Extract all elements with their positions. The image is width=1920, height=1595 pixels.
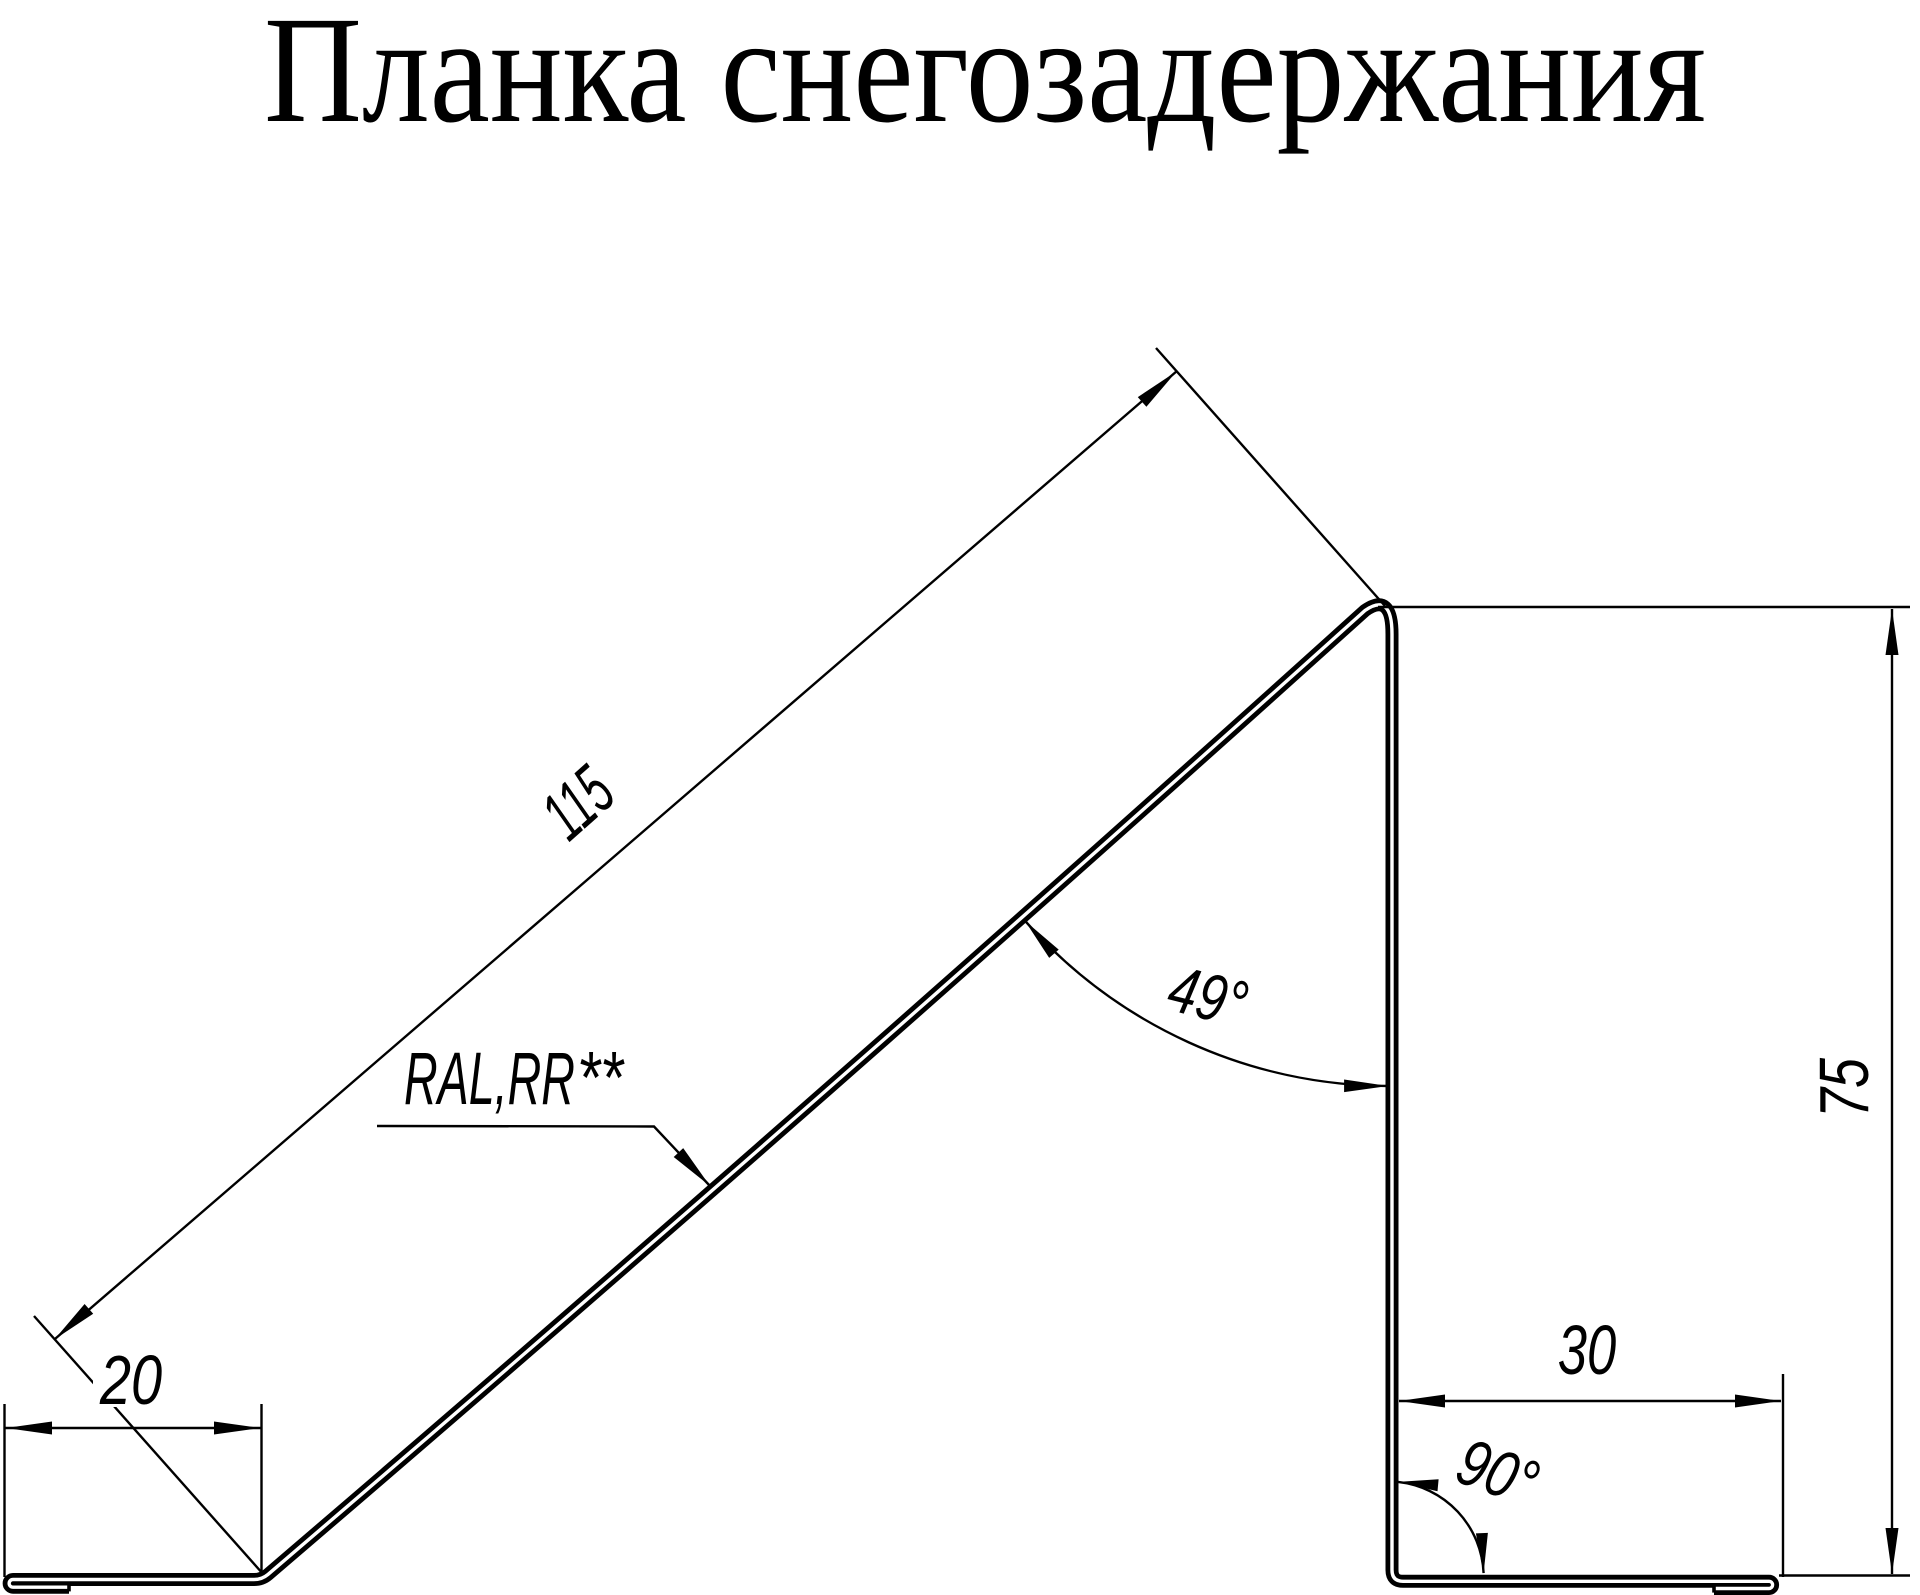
svg-text:Планка снегозадержания: Планка снегозадержания xyxy=(264,0,1706,155)
svg-text:**: ** xyxy=(577,1037,625,1120)
svg-text:75: 75 xyxy=(1805,1058,1883,1118)
svg-text:RAL,RR: RAL,RR xyxy=(404,1038,575,1121)
svg-text:30: 30 xyxy=(1558,1312,1616,1390)
svg-text:20: 20 xyxy=(99,1342,162,1419)
